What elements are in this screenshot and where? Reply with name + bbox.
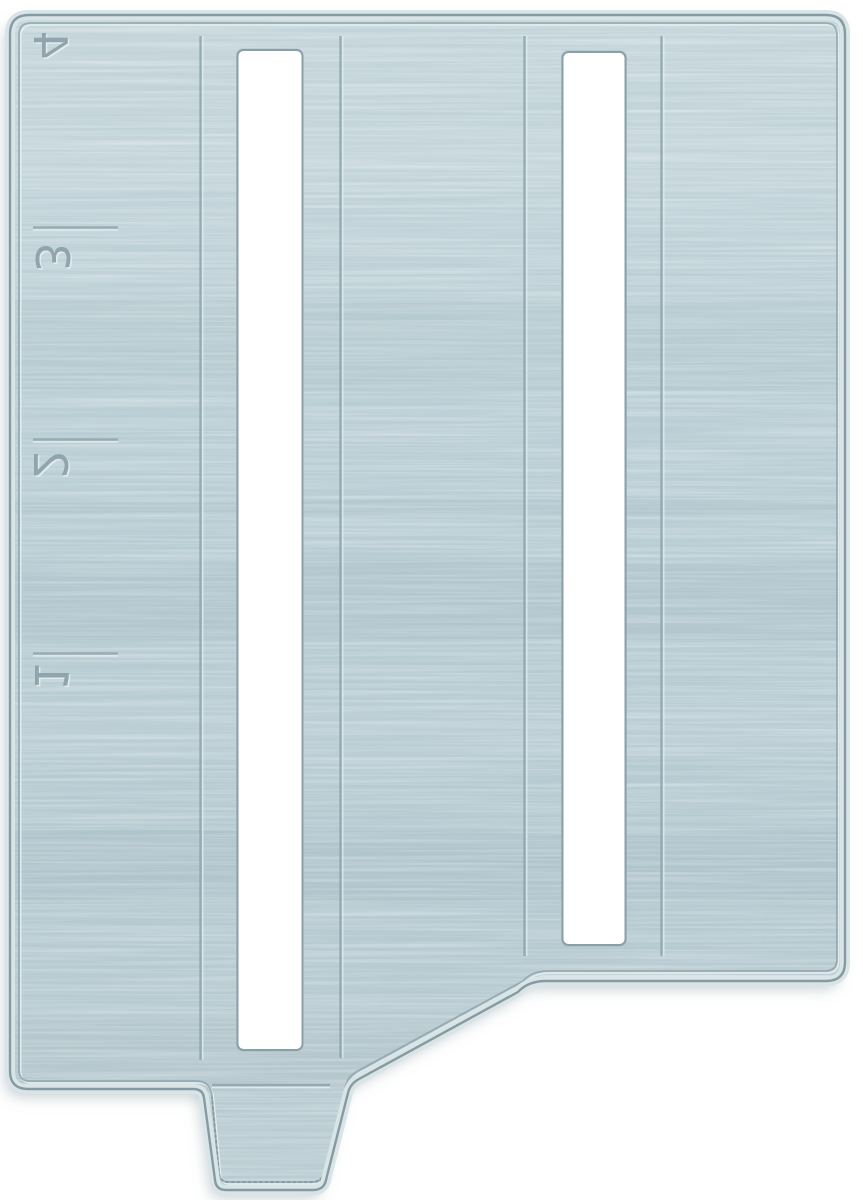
right-slot	[563, 52, 626, 945]
product-photo: 4 4 3 3 2 2 1 1	[0, 0, 863, 1200]
scale-number-3: 3	[25, 242, 79, 271]
brushed-texture	[0, 0, 863, 1200]
scale-number-2: 2	[23, 449, 77, 478]
scale-number-4: 4	[23, 30, 77, 59]
scale-number-1: 1	[24, 661, 78, 690]
slide-plate-illustration: 4 4 3 3 2 2 1 1	[0, 0, 863, 1200]
left-slot	[238, 50, 303, 1050]
